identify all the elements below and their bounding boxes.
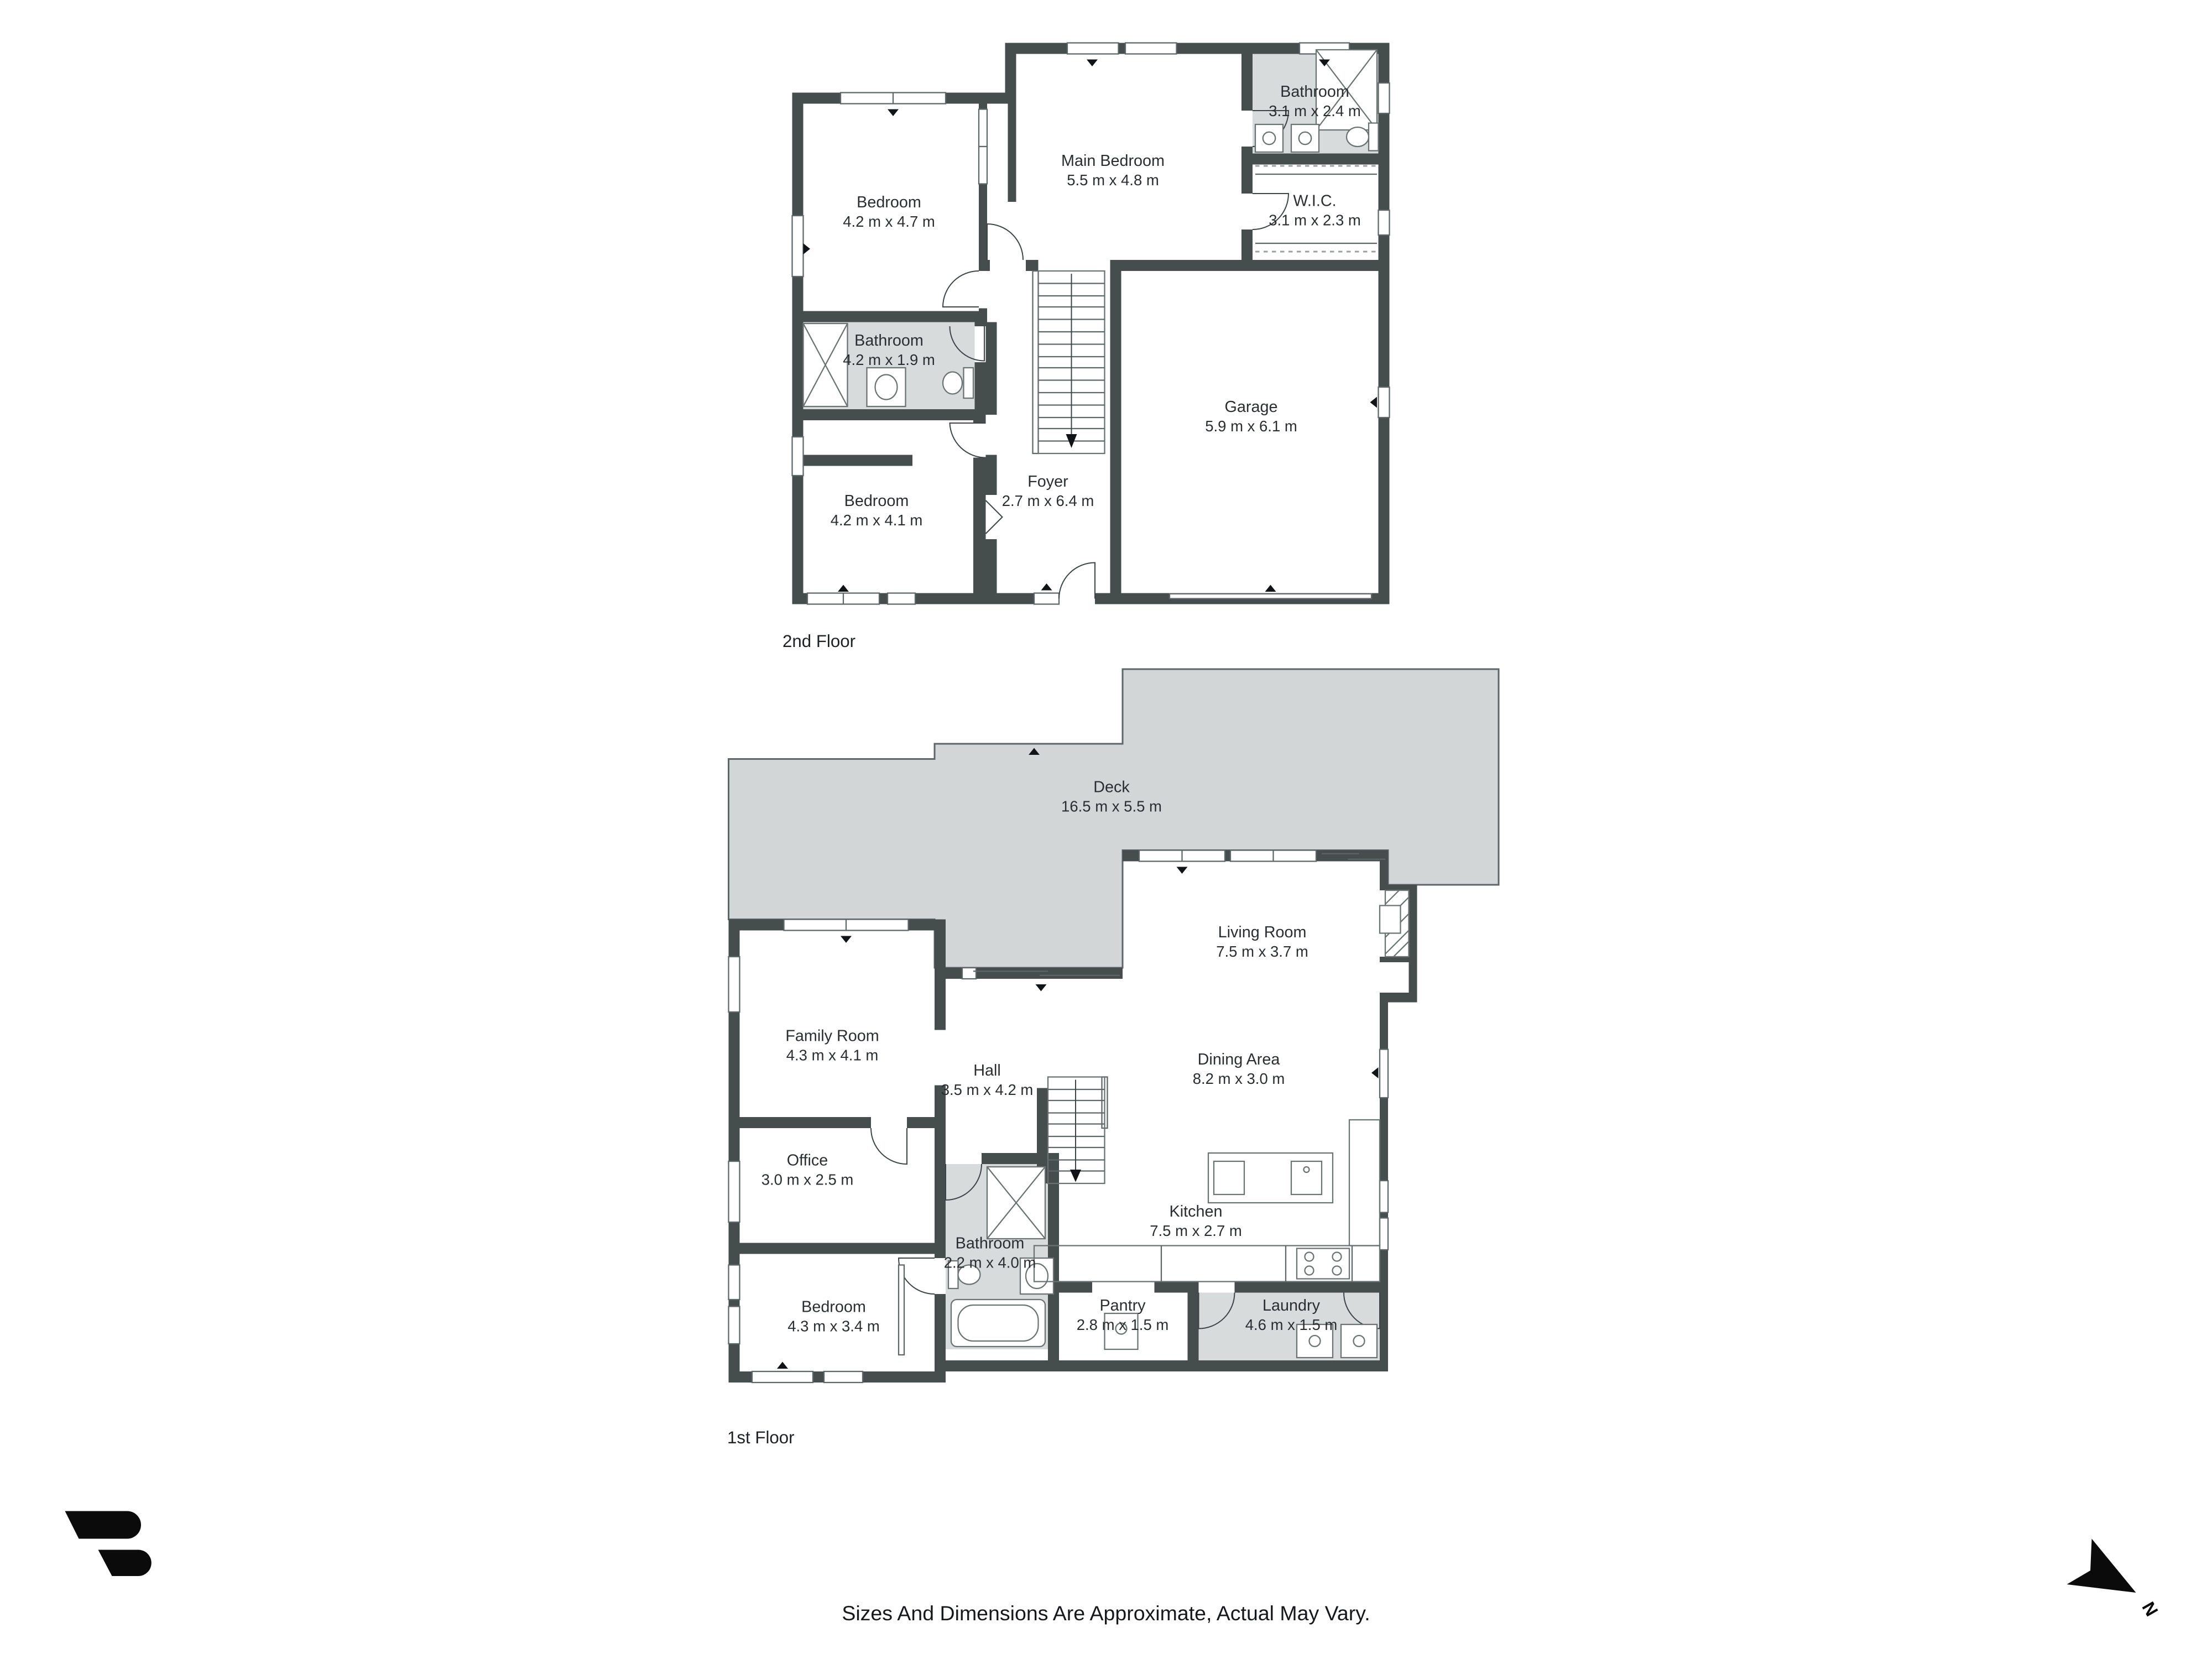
toilet-icon bbox=[964, 368, 974, 398]
room-dims-wic: 3.1 m x 2.3 m bbox=[1269, 212, 1361, 229]
floorplan-drawing: Bedroom 4.2 m x 4.7 m Main Bedroom 5.5 m… bbox=[0, 0, 2212, 1659]
brand-logo-icon bbox=[65, 1511, 152, 1577]
room-dims-kitchen: 7.5 m x 2.7 m bbox=[1150, 1222, 1242, 1239]
room-label-deck: Deck bbox=[1093, 779, 1130, 796]
floorplan-page: Bedroom 4.2 m x 4.7 m Main Bedroom 5.5 m… bbox=[0, 0, 2212, 1659]
sink-icon bbox=[1255, 124, 1283, 152]
room-dims-family-room: 4.3 m x 4.1 m bbox=[786, 1047, 879, 1064]
first-floor-plan: Deck 16.5 m x 5.5 m Living Room 7.5 m x … bbox=[727, 669, 1499, 1447]
room-dims-garage: 5.9 m x 6.1 m bbox=[1205, 418, 1297, 435]
room-label-family-room: Family Room bbox=[785, 1027, 879, 1045]
room-label-bedroom-bl: Bedroom bbox=[844, 492, 909, 510]
room-dims-hall: 3.5 m x 4.2 m bbox=[941, 1081, 1034, 1098]
north-arrow-icon: N bbox=[2067, 1539, 2162, 1620]
room-dims-office: 3.0 m x 2.5 m bbox=[761, 1171, 854, 1188]
room-label-living-room: Living Room bbox=[1218, 924, 1307, 941]
north-label: N bbox=[2138, 1599, 2162, 1620]
room-dims-bathroom-1f: 2.2 m x 4.0 m bbox=[944, 1254, 1036, 1271]
room-dims-bedroom-bl: 4.2 m x 4.1 m bbox=[831, 512, 923, 529]
room-label-office: Office bbox=[787, 1152, 828, 1170]
room-label-pantry: Pantry bbox=[1099, 1297, 1146, 1314]
closet-slider bbox=[899, 1265, 904, 1355]
room-label-wic: W.I.C. bbox=[1293, 192, 1336, 210]
room-dims-bedroom-2f: 4.2 m x 4.7 m bbox=[843, 213, 935, 230]
room-label-hall: Hall bbox=[973, 1062, 1001, 1079]
room-dims-pantry: 2.8 m x 1.5 m bbox=[1077, 1316, 1169, 1333]
room-label-laundry: Laundry bbox=[1262, 1297, 1321, 1314]
room-dims-living-room: 7.5 m x 3.7 m bbox=[1216, 943, 1308, 960]
room-dims-bathroom-mid: 4.2 m x 1.9 m bbox=[843, 351, 935, 368]
room-label-main-bedroom: Main Bedroom bbox=[1061, 152, 1165, 170]
room-label-garage: Garage bbox=[1225, 398, 1278, 416]
room-label-kitchen: Kitchen bbox=[1170, 1203, 1223, 1220]
room-label-bedroom-2f: Bedroom bbox=[857, 194, 921, 211]
sink-icon bbox=[1291, 124, 1319, 152]
kitchen-counter-right bbox=[1349, 1120, 1380, 1246]
stove-icon bbox=[1297, 1249, 1349, 1279]
room-dims-foyer: 2.7 m x 6.4 m bbox=[1002, 492, 1094, 509]
room-label-foyer: Foyer bbox=[1027, 473, 1068, 491]
floor-title-1st: 1st Floor bbox=[727, 1428, 795, 1447]
room-dims-deck: 16.5 m x 5.5 m bbox=[1061, 798, 1162, 815]
stairs-down-arrow-icon bbox=[1070, 1170, 1081, 1182]
room-dims-main-bedroom: 5.5 m x 4.8 m bbox=[1067, 171, 1159, 189]
fireplace-icon bbox=[1380, 890, 1409, 957]
room-label-bathroom-2f: Bathroom bbox=[1280, 83, 1349, 101]
room-label-bedroom-1f: Bedroom bbox=[801, 1298, 866, 1316]
kitchen-island bbox=[1208, 1153, 1333, 1203]
staircase-2f bbox=[1033, 271, 1105, 453]
sink-icon bbox=[867, 368, 906, 406]
room-label-bathroom-mid: Bathroom bbox=[854, 332, 924, 349]
second-floor-plan: Bedroom 4.2 m x 4.7 m Main Bedroom 5.5 m… bbox=[782, 43, 1390, 651]
toilet-icon bbox=[1369, 123, 1379, 151]
room-dims-bedroom-1f: 4.3 m x 3.4 m bbox=[787, 1318, 880, 1335]
floor-title-2nd: 2nd Floor bbox=[782, 632, 855, 651]
disclaimer-text: Sizes And Dimensions Are Approximate, Ac… bbox=[842, 1601, 1370, 1625]
room-dims-laundry: 4.6 m x 1.5 m bbox=[1245, 1316, 1338, 1333]
room-label-bathroom-1f: Bathroom bbox=[956, 1235, 1025, 1253]
room-dims-dining-area: 8.2 m x 3.0 m bbox=[1193, 1070, 1285, 1087]
kitchen-counter bbox=[1034, 1246, 1380, 1282]
garage-door bbox=[1170, 594, 1371, 599]
room-dims-bathroom-2f: 3.1 m x 2.4 m bbox=[1269, 102, 1361, 119]
room-label-dining-area: Dining Area bbox=[1198, 1051, 1280, 1068]
dryer-icon bbox=[1341, 1324, 1377, 1358]
